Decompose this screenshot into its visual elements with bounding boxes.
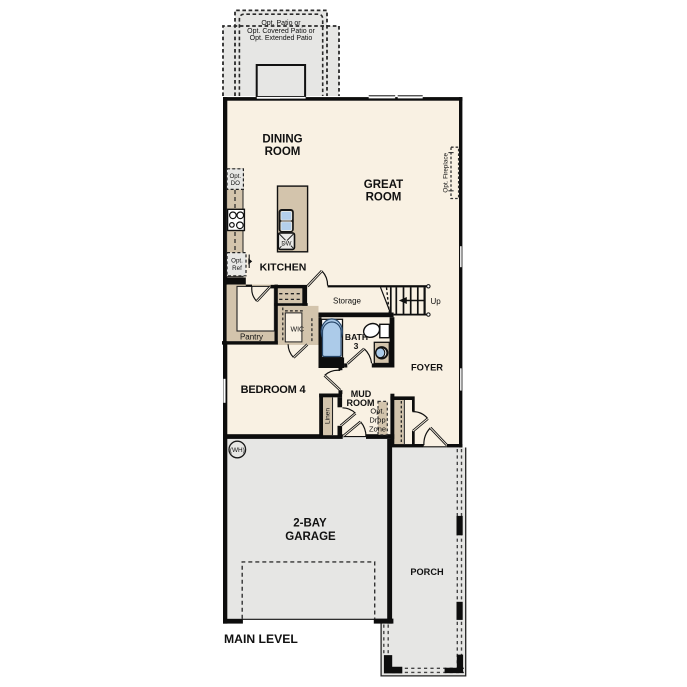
svg-text:Ref: Ref	[232, 265, 242, 272]
svg-text:Opt. Patio or: Opt. Patio or	[261, 20, 301, 27]
svg-text:Zone: Zone	[369, 424, 386, 433]
svg-text:Opt.: Opt.	[231, 258, 243, 265]
svg-text:Storage: Storage	[333, 297, 362, 306]
svg-text:BEDROOM 4: BEDROOM 4	[241, 384, 307, 396]
svg-text:Opt. Extended Patio: Opt. Extended Patio	[250, 35, 313, 42]
svg-text:3: 3	[354, 341, 359, 351]
svg-text:KITCHEN: KITCHEN	[260, 262, 307, 274]
svg-text:Pantry: Pantry	[240, 332, 263, 341]
svg-text:(WH): (WH)	[230, 447, 245, 454]
svg-text:Up: Up	[431, 297, 442, 306]
svg-text:Linen: Linen	[325, 408, 332, 424]
svg-text:Opt. Fireplace: Opt. Fireplace	[443, 153, 450, 193]
svg-text:ROOM: ROOM	[366, 192, 402, 204]
svg-text:DO: DO	[231, 180, 240, 187]
svg-text:2-BAY: 2-BAY	[293, 518, 327, 530]
svg-text:Drop: Drop	[369, 415, 385, 424]
svg-text:GREAT: GREAT	[364, 179, 403, 191]
svg-text:DINING: DINING	[262, 134, 302, 146]
svg-text:FOYER: FOYER	[411, 363, 443, 373]
svg-text:GARAGE: GARAGE	[285, 531, 336, 543]
svg-text:DW: DW	[281, 241, 291, 247]
svg-text:Opt.: Opt.	[229, 173, 241, 180]
svg-text:Opt.: Opt.	[370, 406, 384, 415]
svg-text:MAIN LEVEL: MAIN LEVEL	[224, 632, 298, 646]
svg-text:PORCH: PORCH	[410, 567, 444, 577]
svg-text:WIC: WIC	[290, 326, 304, 333]
svg-text:ROOM: ROOM	[265, 146, 301, 158]
